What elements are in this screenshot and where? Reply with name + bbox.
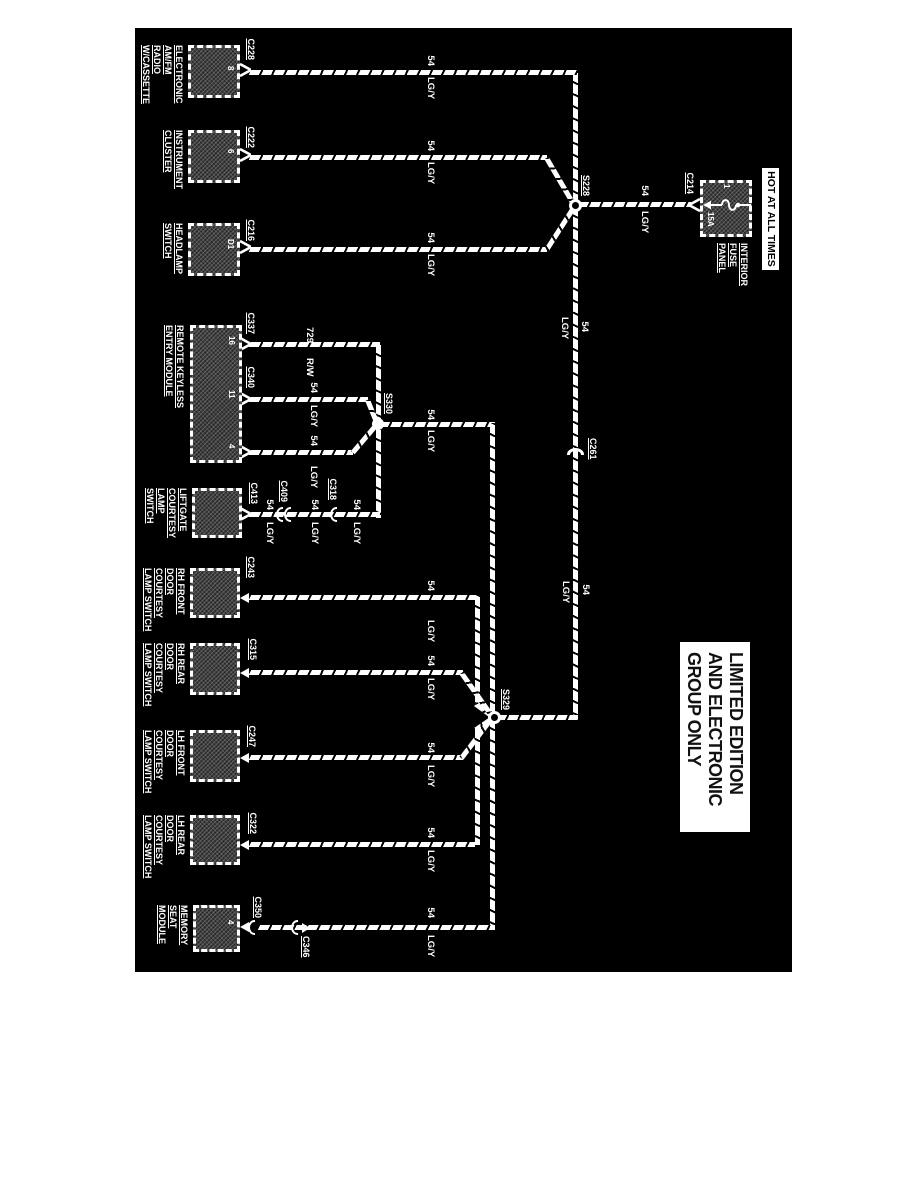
wire-cluster: [249, 155, 547, 160]
connector-arrow-icon-c315: [240, 668, 249, 678]
wire-label-lift3-num: 54: [351, 484, 361, 510]
component-box-radio: [188, 45, 240, 98]
wire-feed-to-s329: [495, 715, 578, 720]
connector-arrow-icon-c247: [240, 753, 249, 763]
wire-label-feed1-num: 54: [579, 306, 589, 332]
connector-label-c315: C315: [248, 628, 258, 660]
connector-label-c216: C216: [246, 209, 256, 241]
wire-lhfront: [249, 755, 463, 760]
connector-label-c337: C337: [246, 302, 256, 334]
component-box-lhfront: [190, 730, 240, 782]
component-box-lhrear: [190, 815, 240, 865]
wire-liftgate: [249, 512, 380, 517]
component-name-rhfront: RH FRONT DOOR COURTESY LAMP SWITCH: [142, 568, 186, 631]
wire-c340: [249, 397, 368, 402]
component-box-cluster: [188, 130, 240, 183]
wire-label-lhfront-num: 54: [425, 727, 435, 753]
component-name-rhrear: RH REAR DOOR COURTESY LAMP SWITCH: [142, 643, 186, 706]
wire-label-radio-color: LG/Y: [425, 77, 435, 99]
component-box-rhrear: [190, 643, 240, 695]
splice-s330-dot: [372, 418, 384, 430]
component-box-liftgate: [192, 488, 242, 538]
wire-lhrear: [249, 842, 475, 847]
wire-label-feed2-color: LG/Y: [560, 581, 570, 603]
component-name-headlamp: HEADLAMP SWITCH: [162, 223, 184, 274]
pin-label-cluster: 6: [226, 149, 235, 153]
wire-label-c214-color: LG/Y: [639, 211, 649, 233]
wire-label-rhrear-num: 54: [425, 640, 435, 666]
wire-label-memory-color: LG/Y: [425, 935, 435, 957]
wire-s330-to-s329: [490, 423, 495, 717]
connector-label-c409: C409: [279, 470, 289, 502]
pin-label-rke-16: 16: [227, 336, 236, 345]
component-name-rke: REMOTE KEYLESS ENTRY MODULE: [163, 325, 185, 408]
connector-label-c222: C222: [246, 116, 256, 148]
wire-label-cluster-color: LG/Y: [425, 162, 435, 184]
wire-rke-pin4: [249, 450, 353, 455]
wire-label-lift2-num: 54: [309, 484, 319, 510]
connector-fork-icon-c228: [240, 62, 251, 78]
component-name-memory: MEMORY SEAT MODULE: [156, 905, 189, 945]
connector-label-c322: C322: [248, 802, 258, 834]
connector-arrow-icon-c346: [302, 923, 310, 933]
wire-label-lhrear-color: LG/Y: [425, 850, 435, 872]
fuse-panel-name: INTERIOR FUSE PANEL: [716, 243, 749, 286]
scanned-page: HOT AT ALL TIMES 1 15A INTERIOR FUSE PAN…: [0, 0, 918, 1188]
fuse-rating: 15A: [706, 212, 715, 227]
splice-label-s329: S329: [501, 672, 511, 710]
wire-fuse-to-s228: [577, 202, 691, 207]
wire-label-lhrear-num: 54: [425, 812, 435, 838]
connector-label-c340: C340: [246, 356, 256, 388]
connector-label-c350: C350: [253, 886, 263, 918]
wire-headlamp: [249, 247, 547, 252]
wire-label-lift2-color: LG/Y: [309, 522, 319, 544]
wire-label-headlamp-color: LG/Y: [425, 254, 435, 276]
splice-label-s228: S228: [581, 158, 591, 196]
wire-label-s330out-color: LG/Y: [425, 430, 435, 452]
wire-label-feed1-color: LG/Y: [559, 317, 569, 339]
wire-label-rhfront-num: 54: [425, 565, 435, 591]
wire-label-cluster-num: 54: [425, 125, 435, 151]
component-name-radio: ELECTRONIC AM/FM RADIO W/CASSETTE: [140, 45, 184, 104]
wire-s329-to-memory: [490, 717, 495, 928]
component-name-lhrear: LH REAR DOOR COURTESY LAMP SWITCH: [142, 815, 186, 878]
wire-label-headlamp-num: 54: [425, 217, 435, 243]
wire-lhrear-h: [475, 728, 480, 845]
connector-arrow-icon-c243: [240, 593, 249, 603]
wire-label-feed2-num: 54: [580, 569, 590, 595]
wire-label-rhrear-color: LG/Y: [425, 678, 435, 700]
wire-label-rhfront-color: LG/Y: [425, 620, 435, 642]
hot-at-all-times-banner: HOT AT ALL TIMES: [762, 168, 779, 270]
wire-label-c214-num: 54: [639, 176, 649, 196]
connector-arrow-icon-c322: [240, 840, 249, 850]
wire-label-lhfront-color: LG/Y: [425, 765, 435, 787]
component-name-liftgate: LIFTGATE COURTESY LAMP SWITCH: [144, 488, 188, 538]
connector-label-c413: C413: [249, 472, 259, 504]
connector-fork-icon-c222: [240, 147, 251, 163]
pin-label-radio: 8: [226, 66, 235, 70]
wire-s330-riser: [378, 422, 495, 427]
wiring-diagram: HOT AT ALL TIMES 1 15A INTERIOR FUSE PAN…: [135, 28, 792, 972]
connector-label-c214: C214: [685, 160, 695, 194]
component-name-lhfront: LH FRONT DOOR COURTESY LAMP SWITCH: [142, 730, 186, 793]
connector-fork-icon-c216: [240, 239, 251, 255]
wire-radio: [249, 70, 577, 75]
wire-label-rke4-num: 54: [308, 420, 318, 446]
wire-cluster-diag: [545, 157, 576, 205]
wire-rhfront: [249, 595, 475, 600]
pin-label-memory: 4: [226, 920, 235, 924]
splice-s228-dot: [570, 199, 583, 212]
wire-label-s330out-num: 54: [425, 394, 435, 420]
wire-label-lift1-num: 54: [264, 484, 274, 510]
fuse-number: 1: [722, 184, 731, 188]
connector-label-c318: C318: [328, 468, 338, 500]
wire-label-c340-num: 54: [308, 367, 318, 393]
connector-label-c243: C243: [246, 546, 256, 578]
wire-label-radio-num: 54: [425, 40, 435, 66]
component-box-rhfront: [190, 568, 240, 618]
pin-label-headlamp: D1: [226, 239, 235, 249]
pin-label-rke-11: 11: [227, 390, 236, 398]
connector-label-c247: C247: [247, 715, 257, 747]
wire-label-729-num: 729: [304, 317, 314, 343]
connector-label-c261: C261: [588, 438, 598, 460]
wire-headlamp-diag: [545, 207, 576, 252]
component-box-headlamp: [188, 223, 240, 276]
wire-label-lift1-color: LG/Y: [264, 522, 274, 544]
component-name-cluster: INSTRUMENT CLUSTER: [162, 130, 184, 189]
wire-rhrear: [249, 670, 463, 675]
limited-edition-note: LIMITED EDITION AND ELECTRONIC GROUP ONL…: [680, 642, 750, 832]
wire-feed-bus: [573, 71, 578, 720]
connector-label-c346: C346: [301, 936, 311, 958]
wire-label-memory-num: 54: [425, 892, 435, 918]
pin-label-rke-4: 4: [227, 444, 236, 448]
connector-arrow-icon-c350: [240, 922, 249, 932]
splice-label-s330: S330: [384, 376, 394, 414]
splice-s329-dot: [489, 711, 502, 724]
wire-s330-cross: [376, 343, 381, 518]
component-box-memory: [193, 905, 240, 952]
connector-label-c228: C228: [246, 28, 256, 60]
wire-label-lift3-color: LG/Y: [351, 522, 361, 544]
